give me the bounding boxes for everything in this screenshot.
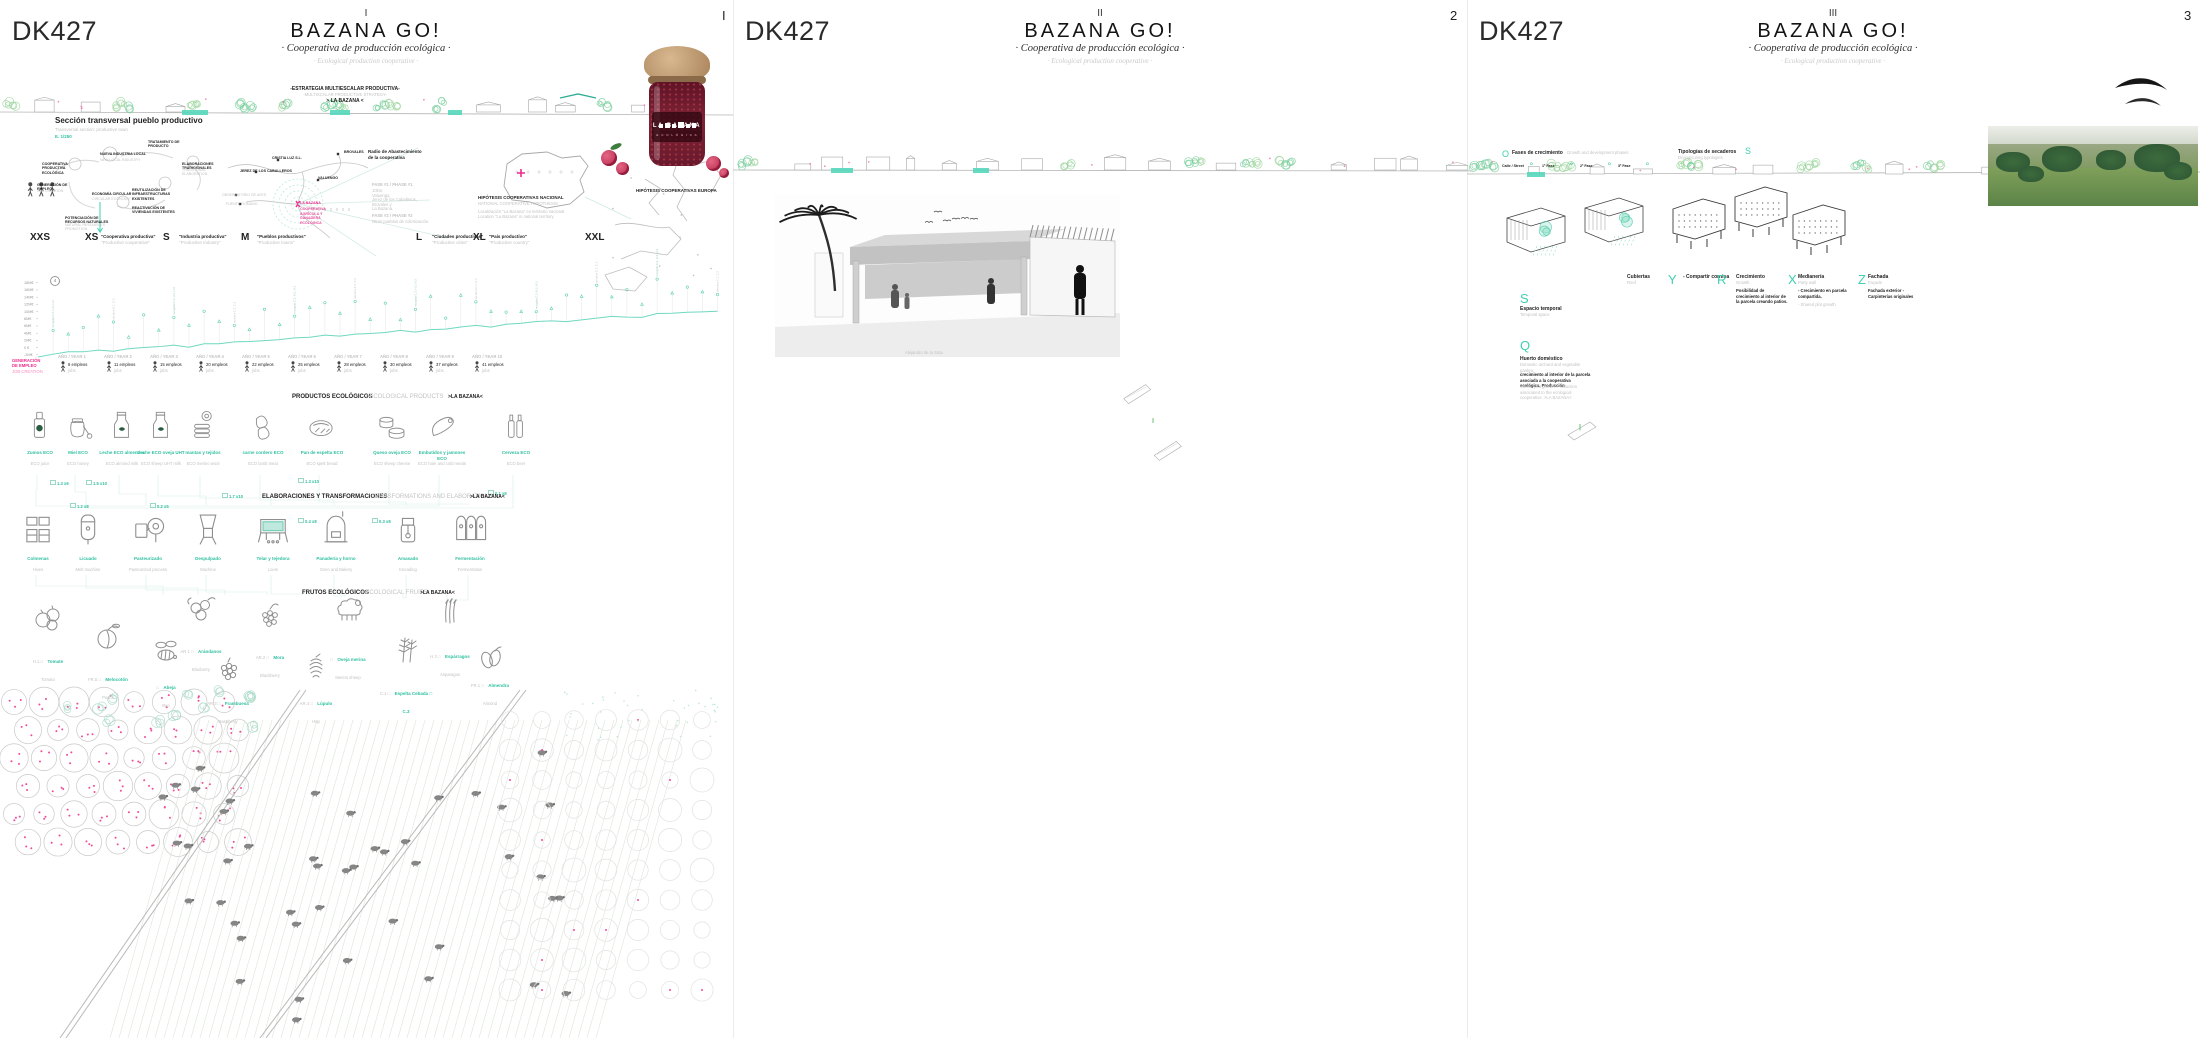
- hypothesis-title: HIPÓTESIS COOPERATIVAS EUROPA: [636, 188, 717, 194]
- machine-label: Fermentación: [442, 556, 498, 562]
- jobs-unit: jobs: [206, 368, 214, 374]
- scale-label-en: "Productive cooperative": [101, 240, 150, 246]
- strategy-tag: > LA BAZANA <: [255, 98, 435, 104]
- scale-label-en: "Productive towns": [257, 240, 294, 246]
- page-subtitle-en: · Ecological production cooperative ·: [166, 57, 566, 65]
- flow-quantity: 1.3 x6: [50, 480, 69, 487]
- phase-letter: O: [1502, 149, 1509, 159]
- fruit-label: Tomate: [48, 659, 64, 664]
- phase-marker: O: [1646, 162, 1649, 166]
- blueberry-icon: [183, 592, 219, 633]
- cycle-label-en: NEW LOCAL INDUSTRY: [100, 158, 146, 162]
- jobs-unit: jobs: [68, 368, 76, 374]
- section-title-en: Transversal section: productive town: [55, 127, 128, 133]
- row-header-en: / ECOLOGICAL PRODUCTS: [366, 394, 443, 400]
- jobs-unit: jobs: [252, 368, 260, 374]
- cheese-icon: [374, 404, 408, 450]
- page-number: 2: [1450, 8, 1457, 23]
- asparagus-icon: [432, 592, 468, 633]
- fruit-code: H.3 □: [430, 654, 440, 659]
- section-title: Sección transversal pueblo productivo: [55, 116, 203, 125]
- svg-text:16M€: 16M€: [24, 288, 34, 292]
- chart-legend: DE EMPLEO: [12, 363, 37, 369]
- year-label: AÑO / YEAR 3: [150, 354, 178, 360]
- town-label: BROVALES: [344, 150, 364, 154]
- svg-text:10M€: 10M€: [24, 310, 34, 314]
- future-pond-sketch: [2128, 682, 2200, 760]
- project-code: DK427: [12, 16, 97, 47]
- page-number: I: [722, 8, 726, 23]
- secaderos-letter: S: [1745, 146, 1751, 156]
- scale-size: S: [163, 232, 170, 243]
- town-label: JEREZ DE LOS CABALLEROS: [240, 169, 292, 173]
- trait-title-en: Party wall: [1798, 280, 1816, 286]
- trait-note-en: - Shared plot growth: [1798, 302, 1850, 308]
- row-header: PRODUCTOS ECOLÓGICOS: [292, 394, 373, 400]
- product-label: carne cordero ECO: [235, 450, 291, 456]
- textile-icon: [185, 404, 219, 450]
- milk-icon: [104, 404, 138, 450]
- fruit-label: Espárragos: [445, 654, 470, 659]
- phase-step: Calle / Street: [1502, 164, 1524, 168]
- svg-text:siembra C.1, C.2: siembra C.1, C.2: [232, 301, 236, 322]
- town-label: FUENTE ROMANO: [226, 202, 258, 206]
- trait-letter: R: [1717, 272, 1726, 287]
- fruit-code: AR.4 □: [300, 701, 313, 706]
- person-icon: [60, 360, 66, 372]
- loom-icon: [253, 504, 293, 549]
- productive-fields-axonometric: [0, 690, 733, 1038]
- flow-b: x10: [312, 479, 319, 484]
- product-label: Embutidos y jamones ECO: [414, 450, 470, 462]
- fruit-label-en: Tomato: [41, 677, 55, 682]
- year-label: AÑO / YEAR 4: [196, 354, 224, 360]
- jar-icon: [60, 404, 94, 450]
- town-label: VALUENGO: [318, 176, 338, 180]
- trait-note: - Crecimiento en parcela compartida.: [1798, 288, 1850, 299]
- year-label: AÑO / YEAR 9: [426, 354, 454, 360]
- svg-text:recogida C.3, H.2, H.3: recogida C.3, H.2, H.3: [414, 279, 418, 307]
- person-icon: [474, 360, 480, 372]
- cycle-label-en: TRADITIONAL ELABORATION: [182, 168, 228, 177]
- phase-step: 3ª Fase: [1618, 164, 1631, 168]
- machine-label-en: Kneading: [380, 567, 436, 573]
- page-subtitle-en: · Ecological production cooperative ·: [900, 57, 1300, 65]
- trait-letter: X: [1788, 272, 1797, 287]
- page-title: BAZANA GO!: [1633, 20, 2033, 43]
- beer-icon: [498, 404, 532, 450]
- machine-label-en: Melt machine: [60, 567, 116, 573]
- flow-a: 0.3: [379, 519, 385, 524]
- fruit-label-en: Bee: [162, 703, 169, 708]
- drying-typologies-sketch: [1665, 175, 1855, 275]
- milk-icon: [143, 404, 177, 450]
- fruit-label: Oveja merina: [337, 657, 365, 662]
- fruit-label-en: Peach: [102, 695, 114, 700]
- phase-label: FASE #2 / PHASE #2: [372, 213, 413, 219]
- svg-text:recogida C.3, H.2, H.3: recogida C.3, H.2, H.3: [293, 286, 297, 314]
- radius-label: Radio de Abastecimiento: [368, 149, 422, 155]
- bread-icon: [304, 404, 338, 450]
- year-label: AÑO / YEAR 5: [242, 354, 270, 360]
- product-label-en: ECO spelt bread: [294, 461, 350, 467]
- village-site-plan: [1467, 772, 2200, 1038]
- machine-label: Despulpado: [180, 556, 236, 562]
- year-label: AÑO / YEAR 8: [380, 354, 408, 360]
- section-scale: E. 1/250: [55, 134, 72, 140]
- svg-text:recogida C.3, H.2, H.3: recogida C.3, H.2, H.3: [655, 249, 659, 277]
- svg-text:siembra C.1, C.2: siembra C.1, C.2: [112, 298, 116, 319]
- canal-section-drawing: [733, 428, 1473, 546]
- scale-size: XL: [473, 232, 486, 243]
- phase-detail: Otros pueblos de colonización.: [372, 219, 429, 225]
- fruit-label: Mora: [273, 655, 284, 660]
- panel-numeral: III: [1633, 8, 2033, 19]
- product-label-en: ECO ham and cold meats: [414, 461, 470, 467]
- fruit-label-en: Raspberry: [218, 719, 237, 724]
- flow-b: x10: [100, 481, 107, 486]
- phase-title: Fases de crecimiento: [1512, 150, 1563, 156]
- bazana-sublabel: ECOLÓGICA: [300, 221, 322, 225]
- svg-text:18M€: 18M€: [24, 281, 34, 285]
- meat-icon: [245, 404, 279, 450]
- scale-size: XS: [85, 232, 98, 243]
- phase-step: 2ª Fase: [1580, 164, 1593, 168]
- secaderos-title-en: Drying/curing typologies: [1678, 155, 1723, 161]
- scale-size: XXS: [30, 232, 50, 243]
- machine-label-en: Hives: [10, 567, 66, 573]
- scale-label: "Cooperativa productiva": [101, 234, 156, 240]
- fruit-code: AR.3 □: [207, 701, 220, 706]
- town-label: CRISTIA LUZ S.L.: [272, 156, 302, 160]
- page-title: BAZANA GO!: [166, 20, 566, 43]
- fruit-label-row: C.1 □ Espelta Cebada □ C.3: [376, 682, 436, 718]
- year-label: AÑO / YEAR 6: [288, 354, 316, 360]
- person-icon: [290, 360, 296, 372]
- radius-label: de la cooperativa: [368, 155, 405, 161]
- fruit-code: FR.5 □: [88, 677, 101, 682]
- ferment-icon: [450, 504, 490, 549]
- scale-label-en: "Productive Industry": [179, 240, 221, 246]
- fruit-label: Espelta Cebada □ C.3: [395, 691, 432, 714]
- svg-text:siembra C.1, C.2: siembra C.1, C.2: [595, 261, 599, 282]
- growth-phases-sketch: [1497, 178, 1662, 273]
- jobs-unit: jobs: [390, 368, 398, 374]
- flow-quantity: 1.7 x10: [222, 493, 243, 500]
- scale-label-en: "Productive cities": [432, 240, 468, 246]
- fruit-label: Frambuesa: [225, 701, 249, 706]
- jar-label-text: LA BAZANA: [652, 123, 702, 129]
- trait-letter: Y: [1668, 272, 1677, 287]
- jobs-unit: jobs: [436, 368, 444, 374]
- fruit-code: FR.1 □: [471, 683, 484, 688]
- flow-a: 1.3: [305, 479, 311, 484]
- raspberry-photo: [706, 156, 721, 171]
- fruit-label-row: H.1 □ TomateTomato: [18, 650, 78, 686]
- project-code: DK427: [745, 16, 830, 47]
- product-label-en: ECO sheep cheese: [364, 461, 420, 467]
- phase-marker: O: [1530, 162, 1533, 166]
- year-label: AÑO / YEAR 10: [472, 354, 502, 360]
- photo-caption: Alejandro de la Sota: [905, 350, 943, 356]
- person-icon: [198, 360, 204, 372]
- phase-marker: O: [1570, 162, 1573, 166]
- trait-title-en: Façade: [1868, 280, 1882, 286]
- fruit-label-row: □ AbejaBee: [136, 676, 196, 712]
- page-number: 3: [2184, 8, 2191, 23]
- wheat-icon: [388, 630, 424, 671]
- raspberry-photo: [616, 162, 629, 175]
- fruit-label-row: AR.4 □ LúpuloHop: [286, 692, 346, 728]
- jobs-unit: jobs: [114, 368, 122, 374]
- flow-quantity: 1.3 x10: [298, 478, 319, 485]
- person-icon: [244, 360, 250, 372]
- person-icon: [428, 360, 434, 372]
- canal-section-drawing: [1467, 455, 2200, 570]
- svg-text:6M€: 6M€: [24, 324, 32, 328]
- fruit-label-row: AR.3 □ FrambuesaRaspberry: [198, 692, 258, 728]
- trait-letter: Z: [1858, 272, 1866, 287]
- phase-detail: La Bazana.: [372, 206, 393, 212]
- svg-text:0 €: 0 €: [24, 346, 30, 350]
- fruit-code: □: [156, 685, 159, 690]
- svg-text:4M€: 4M€: [24, 331, 32, 335]
- oven-icon: [316, 504, 356, 549]
- flow-a: 1.5: [93, 481, 99, 486]
- trait-title-en: Roof: [1627, 280, 1636, 286]
- row-header-tag: >LA BAZANA<: [448, 394, 483, 400]
- flow-a: 0.4: [305, 519, 311, 524]
- machine-label-en: Machine: [180, 567, 236, 573]
- fruit-code: H.1 □: [33, 659, 43, 664]
- fruit-label-en: Asparagus: [440, 672, 460, 677]
- machine-label: Telar y tejedora: [245, 556, 301, 562]
- svg-text:12M€: 12M€: [24, 303, 34, 307]
- machine-icon: [128, 504, 168, 549]
- fruit-code: AR.1 □: [181, 649, 194, 654]
- jobs-unit: jobs: [298, 368, 306, 374]
- product-label-en: ECO lamb meat: [235, 461, 291, 467]
- year-label: AÑO / YEAR 2: [104, 354, 132, 360]
- jobs-unit: jobs: [160, 368, 168, 374]
- person-icon: [106, 360, 112, 372]
- product-label: Queso oveja ECO: [364, 450, 420, 456]
- sheep-icon: [330, 590, 366, 631]
- village-site-plan: [733, 772, 1473, 1038]
- cycle-label: REACTIVACIÓN DE VIVIENDAS EXISTENTES: [132, 206, 178, 215]
- phase-title-en: Growth and development phases: [1567, 150, 1628, 156]
- flow-b: x6: [64, 481, 69, 486]
- svg-text:siembra C.1, C.2: siembra C.1, C.2: [716, 271, 720, 292]
- year-label: AÑO / YEAR 1: [58, 354, 86, 360]
- fruit-label-row: AR.2 □ MoraBlackberry: [240, 646, 300, 682]
- fruit-label: Lúpulo: [317, 701, 332, 706]
- person-icon: [336, 360, 342, 372]
- hypothesis-title-en: NATIONAL COOPERATIVE HYPOTHESIS: [478, 201, 558, 207]
- scale-label: "País productivo": [489, 234, 527, 240]
- machine-label: Pasteurizado: [120, 556, 176, 562]
- boxes-icon: [18, 504, 58, 549]
- plaza-axonometric: [1095, 138, 1480, 443]
- circled-number: 4: [50, 276, 60, 286]
- plot-growth-axonometric: [1540, 290, 1940, 450]
- fruit-code: AR.2 □: [256, 655, 269, 660]
- fruit-label-en: Almond: [483, 701, 497, 706]
- person-icon: [382, 360, 388, 372]
- hopper-icon: [188, 504, 228, 549]
- jobs-unit: jobs: [344, 368, 352, 374]
- page-subtitle-en: · Ecological production cooperative ·: [1633, 57, 2033, 65]
- plaza-photomontage: [775, 195, 1120, 357]
- svg-text:2M€: 2M€: [24, 339, 32, 343]
- hypothesis-note-en: Location "La Bazana" in national territo…: [478, 214, 554, 220]
- machine-label-en: Oven and Bakery: [308, 567, 364, 573]
- scale-size: XXL: [585, 232, 604, 243]
- machine-label-en: Pasteurized process: [120, 567, 176, 573]
- phase-label: FASE #1 / PHASE #1: [372, 182, 413, 188]
- fruit-label-en: Hop: [312, 719, 320, 724]
- panel-numeral: I: [166, 8, 566, 19]
- mixer-icon: [388, 504, 428, 549]
- cycle-label: COOPERATIVA PRODUCTIVA ECOLÓGICA: [42, 162, 88, 175]
- hypothesis-title: HIPÓTESIS COOPERATIVAS NACIONAL: [478, 195, 564, 201]
- year-label: AÑO / YEAR 7: [334, 354, 362, 360]
- machine-label: Amasado: [380, 556, 436, 562]
- row-header-en: / ECOLOGICAL FRUITS: [362, 590, 427, 596]
- product-label-en: ECO beer: [488, 461, 544, 467]
- machine-label: Panadería y horno: [308, 556, 364, 562]
- flow-a: 1.3: [57, 481, 63, 486]
- ham-icon: [424, 404, 458, 450]
- raspberry-photo: [601, 150, 617, 166]
- scale-label-en: "Productive country": [489, 240, 529, 246]
- fruit-label-row: FR.1 □ AlmendraAlmond: [460, 674, 520, 710]
- sq-note-en: Interior plot growth. Production associa…: [1520, 384, 1592, 401]
- phase-marker: O: [1608, 162, 1611, 166]
- fruit-label-en: Blueberry: [192, 667, 210, 672]
- page-subtitle: · Cooperativa de producción ecológica ·: [166, 43, 566, 54]
- peach-icon: [90, 618, 126, 659]
- trait-note: Posibilidad de crecimiento al interior d…: [1736, 288, 1788, 305]
- chart-legend: JOB CREATION: [12, 369, 43, 375]
- sq-letter: S: [1520, 291, 1529, 306]
- blackberry-icon: [252, 598, 288, 639]
- machine-label: Colmenas: [10, 556, 66, 562]
- flow-quantity: 1.5 x10: [86, 480, 107, 487]
- cycle-label: REUTILIZACIÓN DE INFRAESTRUCTURAS EXISTE…: [132, 188, 178, 201]
- sq-title-en: Temporal space: [1520, 312, 1550, 318]
- svg-text:14M€: 14M€: [24, 295, 34, 299]
- trait-note: Fachada exterior - Carpinterías original…: [1868, 288, 1920, 299]
- page-subtitle: · Cooperativa de producción ecológica ·: [900, 43, 1300, 54]
- row-header-tag: >LA BAZANA<: [470, 494, 505, 500]
- fruit-label-en: Blackberry: [260, 673, 280, 678]
- fruit-label-en: Merino sheep: [335, 675, 360, 680]
- svg-text:recogida C.3, H.2, H.3: recogida C.3, H.2, H.3: [51, 300, 55, 328]
- machine-label-en: Fermentation: [442, 567, 498, 573]
- cycle-label-en: CIRCULAR ECONOMY: [92, 197, 138, 201]
- scale-label: "Pueblos productivos": [257, 234, 306, 240]
- scale-size: M: [241, 232, 249, 243]
- svg-text:siembra C.1, C.2: siembra C.1, C.2: [474, 278, 478, 299]
- phase-step: 1ª Fase: [1542, 164, 1555, 168]
- town-label: OBSERVATORIO DE AVES: [222, 193, 266, 197]
- fruit-code: C.1 □: [380, 691, 390, 696]
- page-title: BAZANA GO!: [900, 20, 1300, 43]
- competition-board: DK427 I I BAZANA GO! · Cooperativa de pr…: [0, 0, 2200, 1038]
- cycle-label: NUEVA INDUSTRIA LOCAL: [100, 152, 146, 156]
- trait-title-en: Growth: [1736, 280, 1750, 286]
- svg-text:recogida C.3, H.2, H.3: recogida C.3, H.2, H.3: [534, 281, 538, 309]
- scale-size: L: [416, 232, 422, 243]
- fruit-label-row: □ Oveja merinaMerino sheep: [318, 648, 378, 684]
- town-label-bazana: LA BAZANA: [300, 201, 321, 205]
- strategy-title-en: -MULTISCALAR PRODUCTIVE STRATEGY-: [255, 92, 435, 98]
- svg-text:8M€: 8M€: [24, 317, 32, 321]
- svg-text:siembra C.1, C.2: siembra C.1, C.2: [353, 278, 357, 299]
- sq-letter: Q: [1520, 338, 1530, 353]
- jobs-unit: jobs: [482, 368, 490, 374]
- tank-icon: [68, 504, 108, 549]
- fruit-label: Almendra: [488, 683, 509, 688]
- cycle-label: TRATAMIENTO DE PRODUCTO: [148, 140, 194, 149]
- svg-text:-2M€: -2M€: [24, 353, 34, 357]
- product-label: Pan de espelta ECO: [294, 450, 350, 456]
- cycle-label-en: NATURAL RESOURCES PROMOTION: [65, 223, 111, 232]
- cycle-label-en: JOB CREATION: [37, 189, 83, 193]
- svg-text:recogida C.3, H.2, H.3: recogida C.3, H.2, H.3: [172, 287, 176, 315]
- flow-quantity: 0.4 x8: [298, 518, 317, 525]
- machine-label-en: Loom: [245, 567, 301, 573]
- product-label-en: ECO merino wool: [175, 461, 231, 467]
- fruit-label: Abeja: [163, 685, 175, 690]
- bottle-icon: [22, 404, 56, 450]
- flow-b: x10: [236, 494, 243, 499]
- jar-label-sub: E C O L Ó G I C A: [652, 133, 702, 137]
- product-label: mantas y tejidos: [175, 450, 231, 456]
- flow-a: 1.7: [229, 494, 235, 499]
- landscape-photo: [1988, 126, 2198, 206]
- person-icon: [152, 360, 158, 372]
- raspberry-photo: [719, 168, 729, 178]
- machine-label: Licuado: [60, 556, 116, 562]
- scale-label: "Industria productiva": [179, 234, 227, 240]
- fruit-label-row: FR.5 □ MelocotónPeach: [78, 668, 138, 704]
- page-subtitle: · Cooperativa de producción ecológica ·: [1633, 43, 2033, 54]
- panel-numeral: II: [900, 8, 1300, 19]
- fruit-code: □: [330, 657, 333, 662]
- fruit-label: Melocotón: [105, 677, 128, 682]
- project-code: DK427: [1479, 16, 1564, 47]
- tomato-icon: [30, 600, 66, 641]
- product-label: Cerveza ECO: [488, 450, 544, 456]
